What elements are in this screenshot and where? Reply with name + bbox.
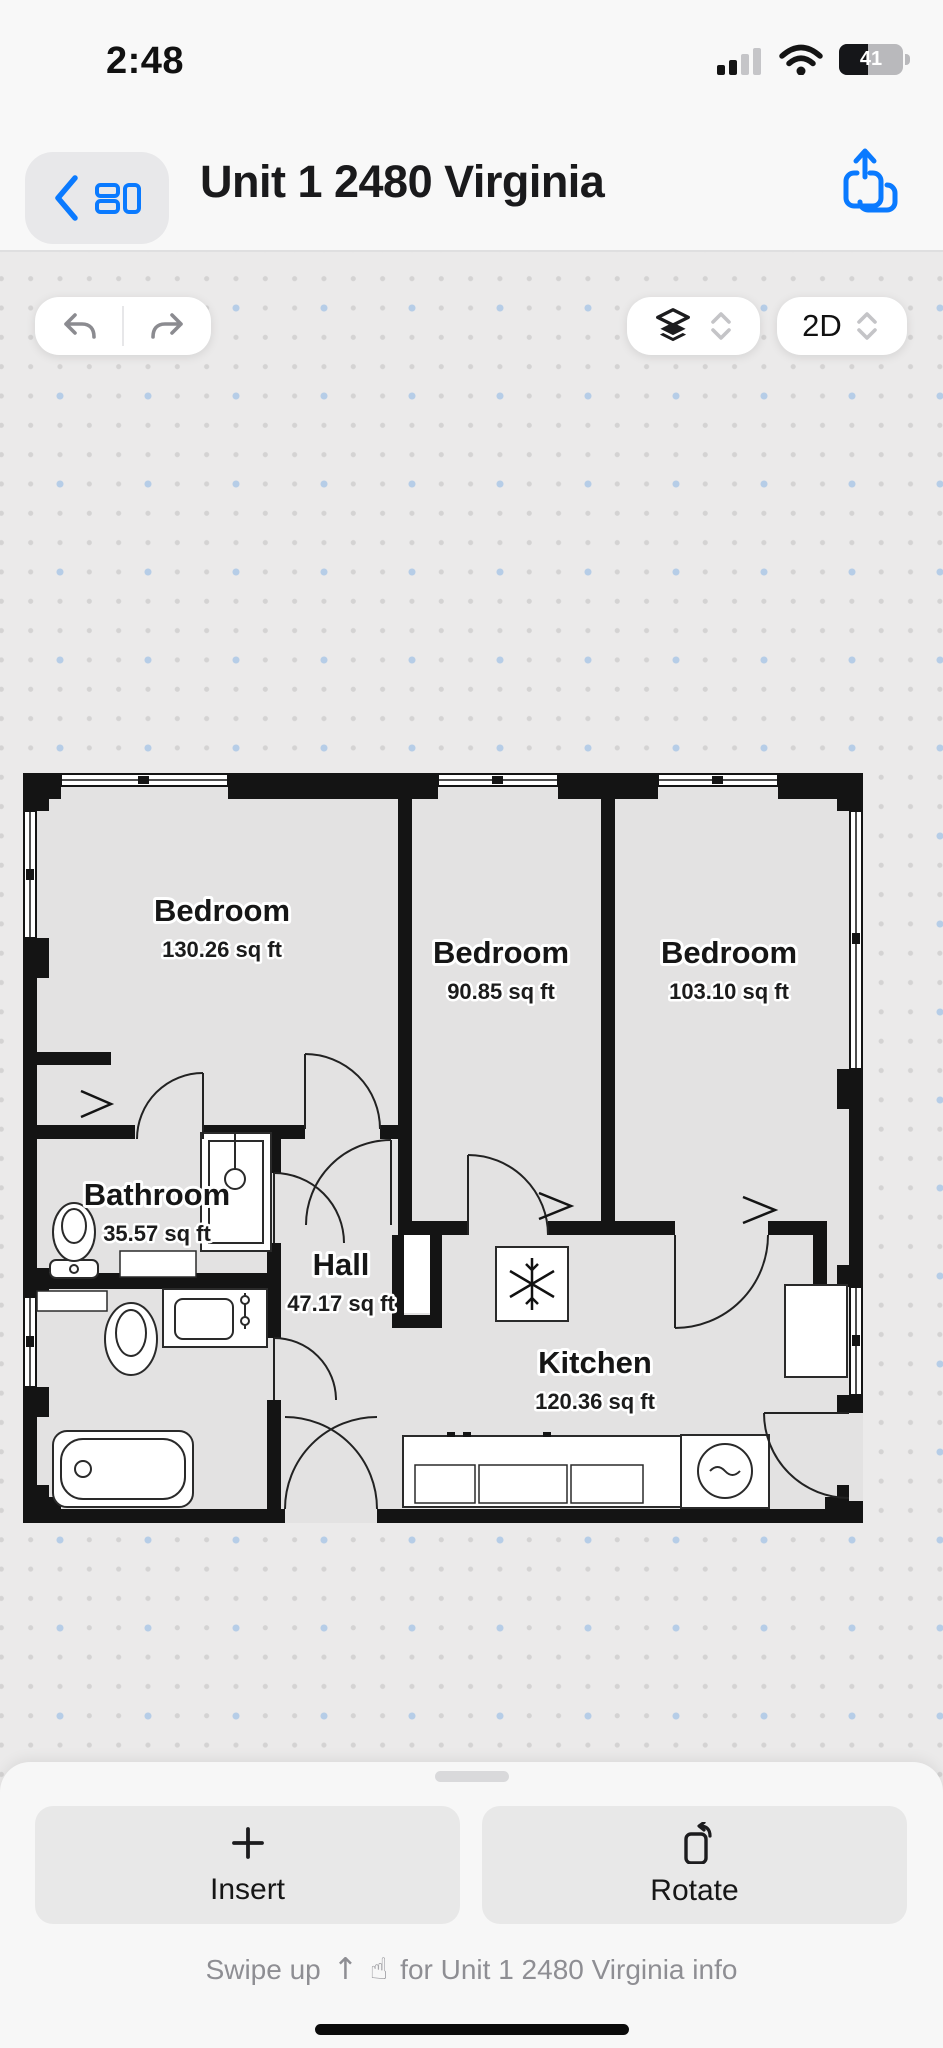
rotate-button[interactable]: Rotate (482, 1806, 907, 1924)
swipe-hand-icon: ☝ (370, 1952, 388, 1987)
swipe-hint: Swipe up ↑ ☝ for Unit 1 2480 Virginia in… (0, 1952, 943, 1987)
cellular-signal-icon (717, 44, 763, 75)
window (658, 774, 778, 786)
swipe-hint-suffix: for Unit 1 2480 Virginia info (400, 1954, 737, 1986)
sink-icon (163, 1289, 267, 1347)
window (850, 811, 862, 1069)
svg-text:Bathroom: Bathroom (84, 1177, 230, 1212)
svg-text:35.57 sq ft: 35.57 sq ft (103, 1221, 211, 1246)
svg-text:Hall: Hall (313, 1247, 370, 1282)
room-bedroom-2[interactable]: Bedroom 90.85 sq ft (433, 935, 569, 1004)
toilet-icon (50, 1203, 98, 1278)
rotate-phone-icon (672, 1822, 718, 1864)
layers-selector[interactable] (627, 297, 760, 355)
room-bedroom-1[interactable]: Bedroom 130.26 sq ft (154, 893, 290, 962)
window (438, 774, 558, 786)
page-title: Unit 1 2480 Virginia (200, 156, 604, 208)
svg-text:47.17 sq ft: 47.17 sq ft (287, 1291, 395, 1316)
room-kitchen[interactable]: Kitchen 120.36 sq ft (535, 1345, 656, 1414)
floor (30, 780, 856, 1516)
bottom-sheet: Insert Rotate Swipe up ↑ ☝ for Unit 1 24… (0, 1762, 943, 2048)
layers-icon (652, 304, 694, 348)
svg-text:103.10 sq ft: 103.10 sq ft (669, 979, 790, 1004)
svg-text:120.36 sq ft: 120.36 sq ft (535, 1389, 656, 1414)
view-mode-value: 2D (802, 308, 842, 344)
app-screen: 2:48 41 (0, 0, 943, 2048)
window (850, 1287, 862, 1395)
svg-text:130.26 sq ft: 130.26 sq ft (162, 937, 283, 962)
fridge-icon (496, 1247, 568, 1321)
washer-icon (681, 1435, 769, 1508)
battery-icon: 41 (839, 44, 903, 75)
window (24, 811, 36, 938)
cabinet-icon (785, 1285, 847, 1377)
chevron-up-down-icon (706, 307, 736, 345)
chevron-up-down-icon (852, 307, 882, 345)
status-bar: 2:48 41 (0, 0, 943, 110)
room-bathroom[interactable]: Bathroom 35.57 sq ft (84, 1177, 230, 1246)
window (24, 1297, 36, 1387)
back-chevron-icon (52, 173, 80, 223)
share-button[interactable] (835, 144, 905, 224)
svg-text:Bedroom: Bedroom (433, 935, 569, 970)
insert-button[interactable]: Insert (35, 1806, 460, 1924)
undo-redo-toolbar (35, 297, 211, 355)
pocket-niche (404, 1235, 430, 1313)
window (61, 774, 228, 786)
wifi-icon (779, 44, 823, 75)
bathtub-icon (53, 1431, 193, 1507)
sheet-drag-handle[interactable] (435, 1771, 509, 1782)
view-mode-selector[interactable]: 2D (777, 297, 907, 355)
undo-button[interactable] (35, 297, 122, 355)
battery-percent: 41 (839, 44, 903, 75)
svg-text:Kitchen: Kitchen (538, 1345, 652, 1380)
share-icon (840, 147, 900, 219)
home-indicator[interactable] (315, 2024, 629, 2035)
kitchen-counter-icon (403, 1432, 681, 1507)
plans-grid-icon (94, 178, 142, 218)
insert-label: Insert (210, 1873, 285, 1907)
redo-button[interactable] (124, 297, 211, 355)
room-bedroom-3[interactable]: Bedroom 103.10 sq ft (661, 935, 797, 1004)
redo-icon (149, 309, 187, 343)
swipe-hint-prefix: Swipe up (206, 1954, 321, 1986)
back-button[interactable] (25, 152, 169, 244)
floor-plan[interactable]: Bedroom 130.26 sq ft Bedroom 90.85 sq ft… (23, 773, 863, 1523)
toilet-icon (105, 1303, 157, 1375)
undo-icon (60, 309, 98, 343)
rotate-label: Rotate (650, 1874, 738, 1908)
swipe-up-arrow-icon: ↑ (333, 1952, 358, 1987)
bathroom-counter (120, 1251, 196, 1277)
nav-header: Unit 1 2480 Virginia (0, 110, 943, 252)
svg-text:Bedroom: Bedroom (154, 893, 290, 928)
vanity-counter (37, 1291, 107, 1311)
plus-icon (228, 1823, 268, 1863)
svg-text:Bedroom: Bedroom (661, 935, 797, 970)
status-time: 2:48 (106, 40, 184, 83)
svg-text:90.85 sq ft: 90.85 sq ft (447, 979, 555, 1004)
